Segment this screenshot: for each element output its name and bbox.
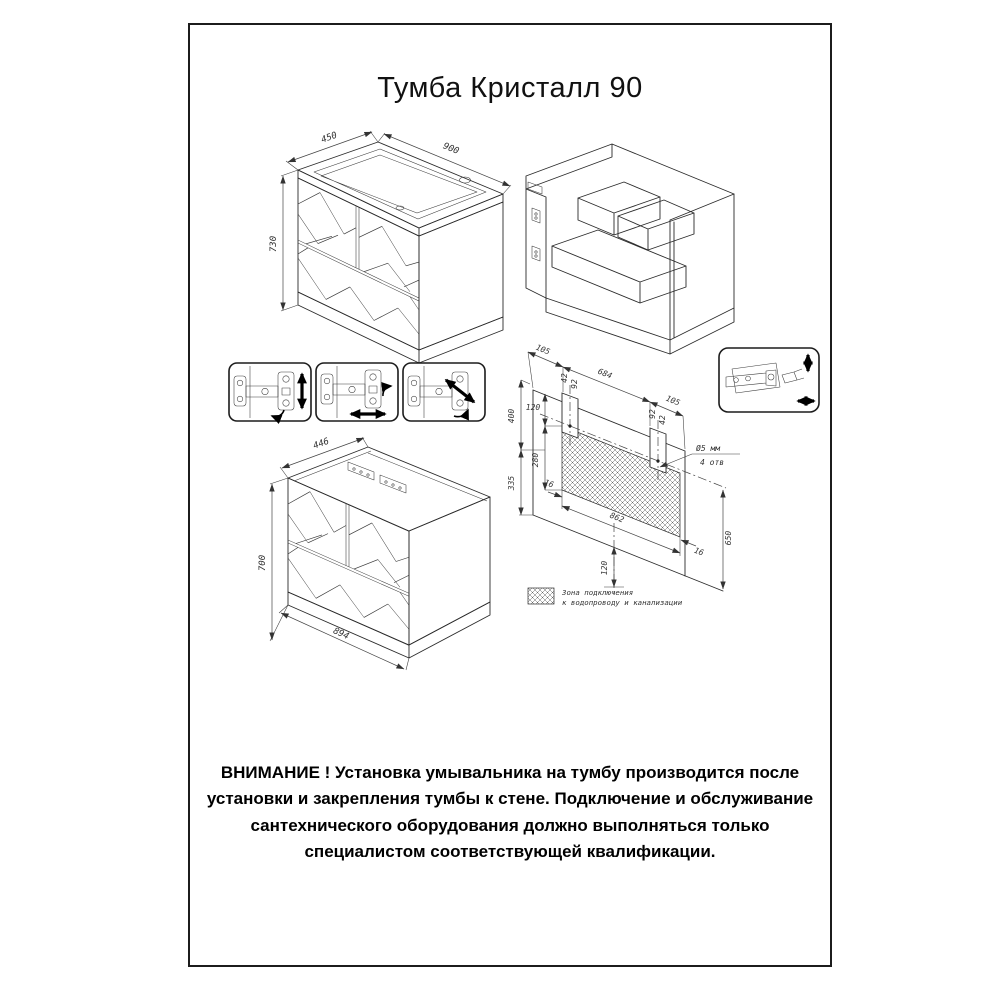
dim-16-right-label: 16 (693, 546, 705, 558)
drawer-box-lower (552, 230, 686, 303)
legend-line2: к водопроводу и канализации (562, 598, 683, 607)
mount-hole-right (656, 459, 659, 462)
technical-drawing-canvas: 450 900 730 (188, 120, 830, 680)
dim-105-right-label: 105 (665, 394, 682, 408)
page-title: Тумба Кристалл 90 (188, 72, 832, 105)
hinge-vertical-adjust-panel (229, 363, 311, 421)
dim-92-right-label: 92 (648, 409, 657, 419)
hole-note-line1: Ø5 мм (696, 443, 721, 453)
dim-16-left-label: 16 (543, 478, 555, 490)
front-view-drawing: 450 900 730 (269, 131, 511, 363)
mount-hole-left (568, 424, 571, 427)
dim-42-left-label: 42 (560, 373, 569, 383)
dim-730-label: 730 (269, 236, 279, 252)
instruction-sheet-page: { "page": { "title": "Тумба Кристалл 90"… (0, 0, 1000, 1000)
hinge-horizontal-adjust-panel (316, 363, 398, 421)
dim-120-bottom-label: 120 (600, 561, 609, 576)
dim-120-top-label: 120 (526, 403, 541, 412)
dim-900-label: 900 (441, 141, 460, 156)
dim-400-label: 400 (507, 409, 516, 424)
drawer-box-upper (578, 182, 660, 235)
dim-650-label: 650 (724, 531, 733, 546)
rear-view-drawing: 446 700 894 (258, 437, 490, 670)
dim-446-label: 446 (312, 437, 331, 452)
hatch-swatch-icon (528, 588, 554, 604)
dim-700-label: 700 (258, 555, 268, 571)
inside-view-drawing (526, 144, 734, 354)
dim-450-label: 450 (320, 131, 339, 146)
drawer-slide-adjust-panel (719, 348, 819, 412)
dim-684-label: 684 (597, 367, 614, 381)
wall-bracket (348, 462, 406, 493)
crystal-front-pattern (298, 178, 419, 350)
warning-text: ВНИМАНИЕ ! Установка умывальника на тумб… (200, 760, 820, 865)
dim-335-label: 335 (507, 476, 516, 492)
dim-280-label: 280 (531, 453, 540, 468)
dim-42-right-label: 42 (658, 415, 667, 425)
legend-line1: Зона подключения (561, 588, 633, 597)
connection-zone-legend: Зона подключения к водопроводу и канализ… (528, 588, 683, 607)
wall-mounting-plan: 105 684 105 42 92 92 42 400 335 120 280 … (507, 343, 740, 607)
crystal-front-pattern (288, 478, 409, 645)
hinge-depth-adjust-panel (403, 363, 485, 421)
dim-894-label: 894 (331, 626, 350, 642)
dim-92-left-label: 92 (570, 379, 579, 389)
hole-note-line2: 4 отв (700, 458, 724, 467)
dim-105-left-label: 105 (535, 343, 552, 357)
